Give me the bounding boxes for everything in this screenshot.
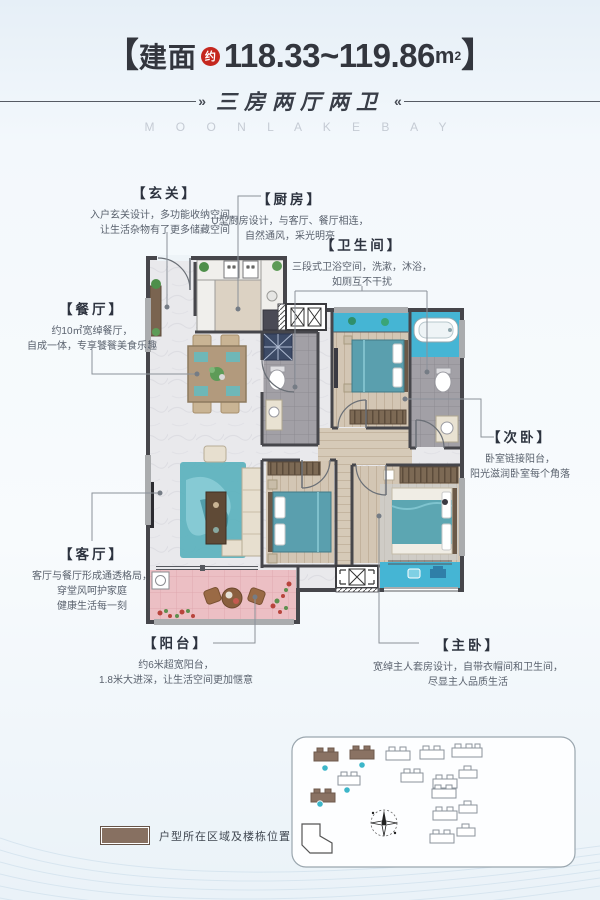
floor-plan (145, 255, 465, 625)
subtitle-right-mark: « (394, 93, 402, 109)
callout-second-bed-label: 【次卧】 (430, 426, 600, 446)
title-bracket-right: 】 (461, 39, 495, 73)
subtitle-row: » 三房两厅两卫 « (0, 86, 600, 116)
title-area-value: 118.33~119.86 (224, 37, 435, 75)
callout-master-bed-line: 尽显主人品质生活 (358, 675, 578, 690)
callout-balcony-line: 1.8米大进深，让生活空间更加惬意 (86, 673, 266, 688)
elevator-top (278, 304, 326, 330)
subtitle: 三房两厅两卫 (216, 86, 384, 116)
title-bracket-left: 【 (105, 39, 139, 73)
callout-living-line: 健康生活每一刻 (2, 599, 182, 614)
callout-living-line: 穿堂风呵护家庭 (2, 584, 182, 599)
site-plan (292, 737, 575, 867)
callout-living: 【客厅】 客厅与餐厅形成通透格局， 穿堂风呵护家庭 健康生活每一刻 (2, 543, 182, 614)
title-area-unit-sup: 2 (454, 49, 461, 63)
hall2-floor (336, 460, 352, 566)
callout-kitchen-line: U型厨房设计，与客厅、餐厅相连， (200, 214, 380, 229)
callout-bathroom-label: 【卫生间】 (272, 234, 452, 254)
secondbed-balcony-floor (333, 312, 409, 332)
floorplan-page: 【 建面 约 118.33~119.86 m 2 】 » 三房两厅两卫 « M … (0, 0, 600, 900)
callout-master-bed-line: 宽绰主人套房设计，自带衣帽间和卫生间， (358, 660, 578, 675)
elevator-bottom (336, 566, 378, 592)
approx-badge: 约 (201, 47, 220, 66)
title-area-prefix: 建面 (139, 36, 197, 76)
legend: 户型所在区域及楼栋位置 (100, 826, 291, 845)
callout-dining: 【餐厅】 约10㎡宽绰餐厅， 自成一体，专享饕餮美食乐趣 (2, 298, 182, 354)
callout-bathroom: 【卫生间】 三段式卫浴空间，洗漱，沐浴， 如厕互不干扰 (272, 234, 452, 290)
callout-living-line: 客厅与餐厅形成通透格局， (2, 569, 182, 584)
callout-dining-line: 自成一体，专享饕餮美食乐趣 (2, 339, 182, 354)
title-area-unit: m (435, 43, 455, 69)
callout-second-bed-line: 阳光滋润卧室每个角落 (430, 467, 600, 482)
callout-balcony-line: 约6米超宽阳台， (86, 658, 266, 673)
callout-living-label: 【客厅】 (2, 543, 182, 563)
legend-swatch (100, 826, 150, 845)
callout-second-bed: 【次卧】 卧室链接阳台， 阳光滋润卧室每个角落 (430, 426, 600, 482)
callout-dining-label: 【餐厅】 (2, 298, 182, 318)
callout-dining-line: 约10㎡宽绰餐厅， (2, 324, 182, 339)
page-title: 【 建面 约 118.33~119.86 m 2 】 (0, 36, 600, 76)
subtitle-left-mark: » (198, 93, 206, 109)
english-title: M O O N L A K E B A Y (0, 120, 600, 134)
callout-kitchen-label: 【厨房】 (200, 188, 380, 208)
callout-master-bed-label: 【主卧】 (358, 634, 578, 654)
callout-bathroom-line: 如厕互不干扰 (272, 275, 452, 290)
callout-bathroom-line: 三段式卫浴空间，洗漱，沐浴， (272, 260, 452, 275)
callout-master-bed: 【主卧】 宽绰主人套房设计，自带衣帽间和卫生间， 尽显主人品质生活 (358, 634, 578, 690)
callout-balcony: 【阳台】 约6米超宽阳台， 1.8米大进深，让生活空间更加惬意 (86, 632, 266, 688)
legend-text: 户型所在区域及楼栋位置 (159, 828, 291, 844)
callout-second-bed-line: 卧室链接阳台， (430, 452, 600, 467)
callout-balcony-label: 【阳台】 (86, 632, 266, 652)
